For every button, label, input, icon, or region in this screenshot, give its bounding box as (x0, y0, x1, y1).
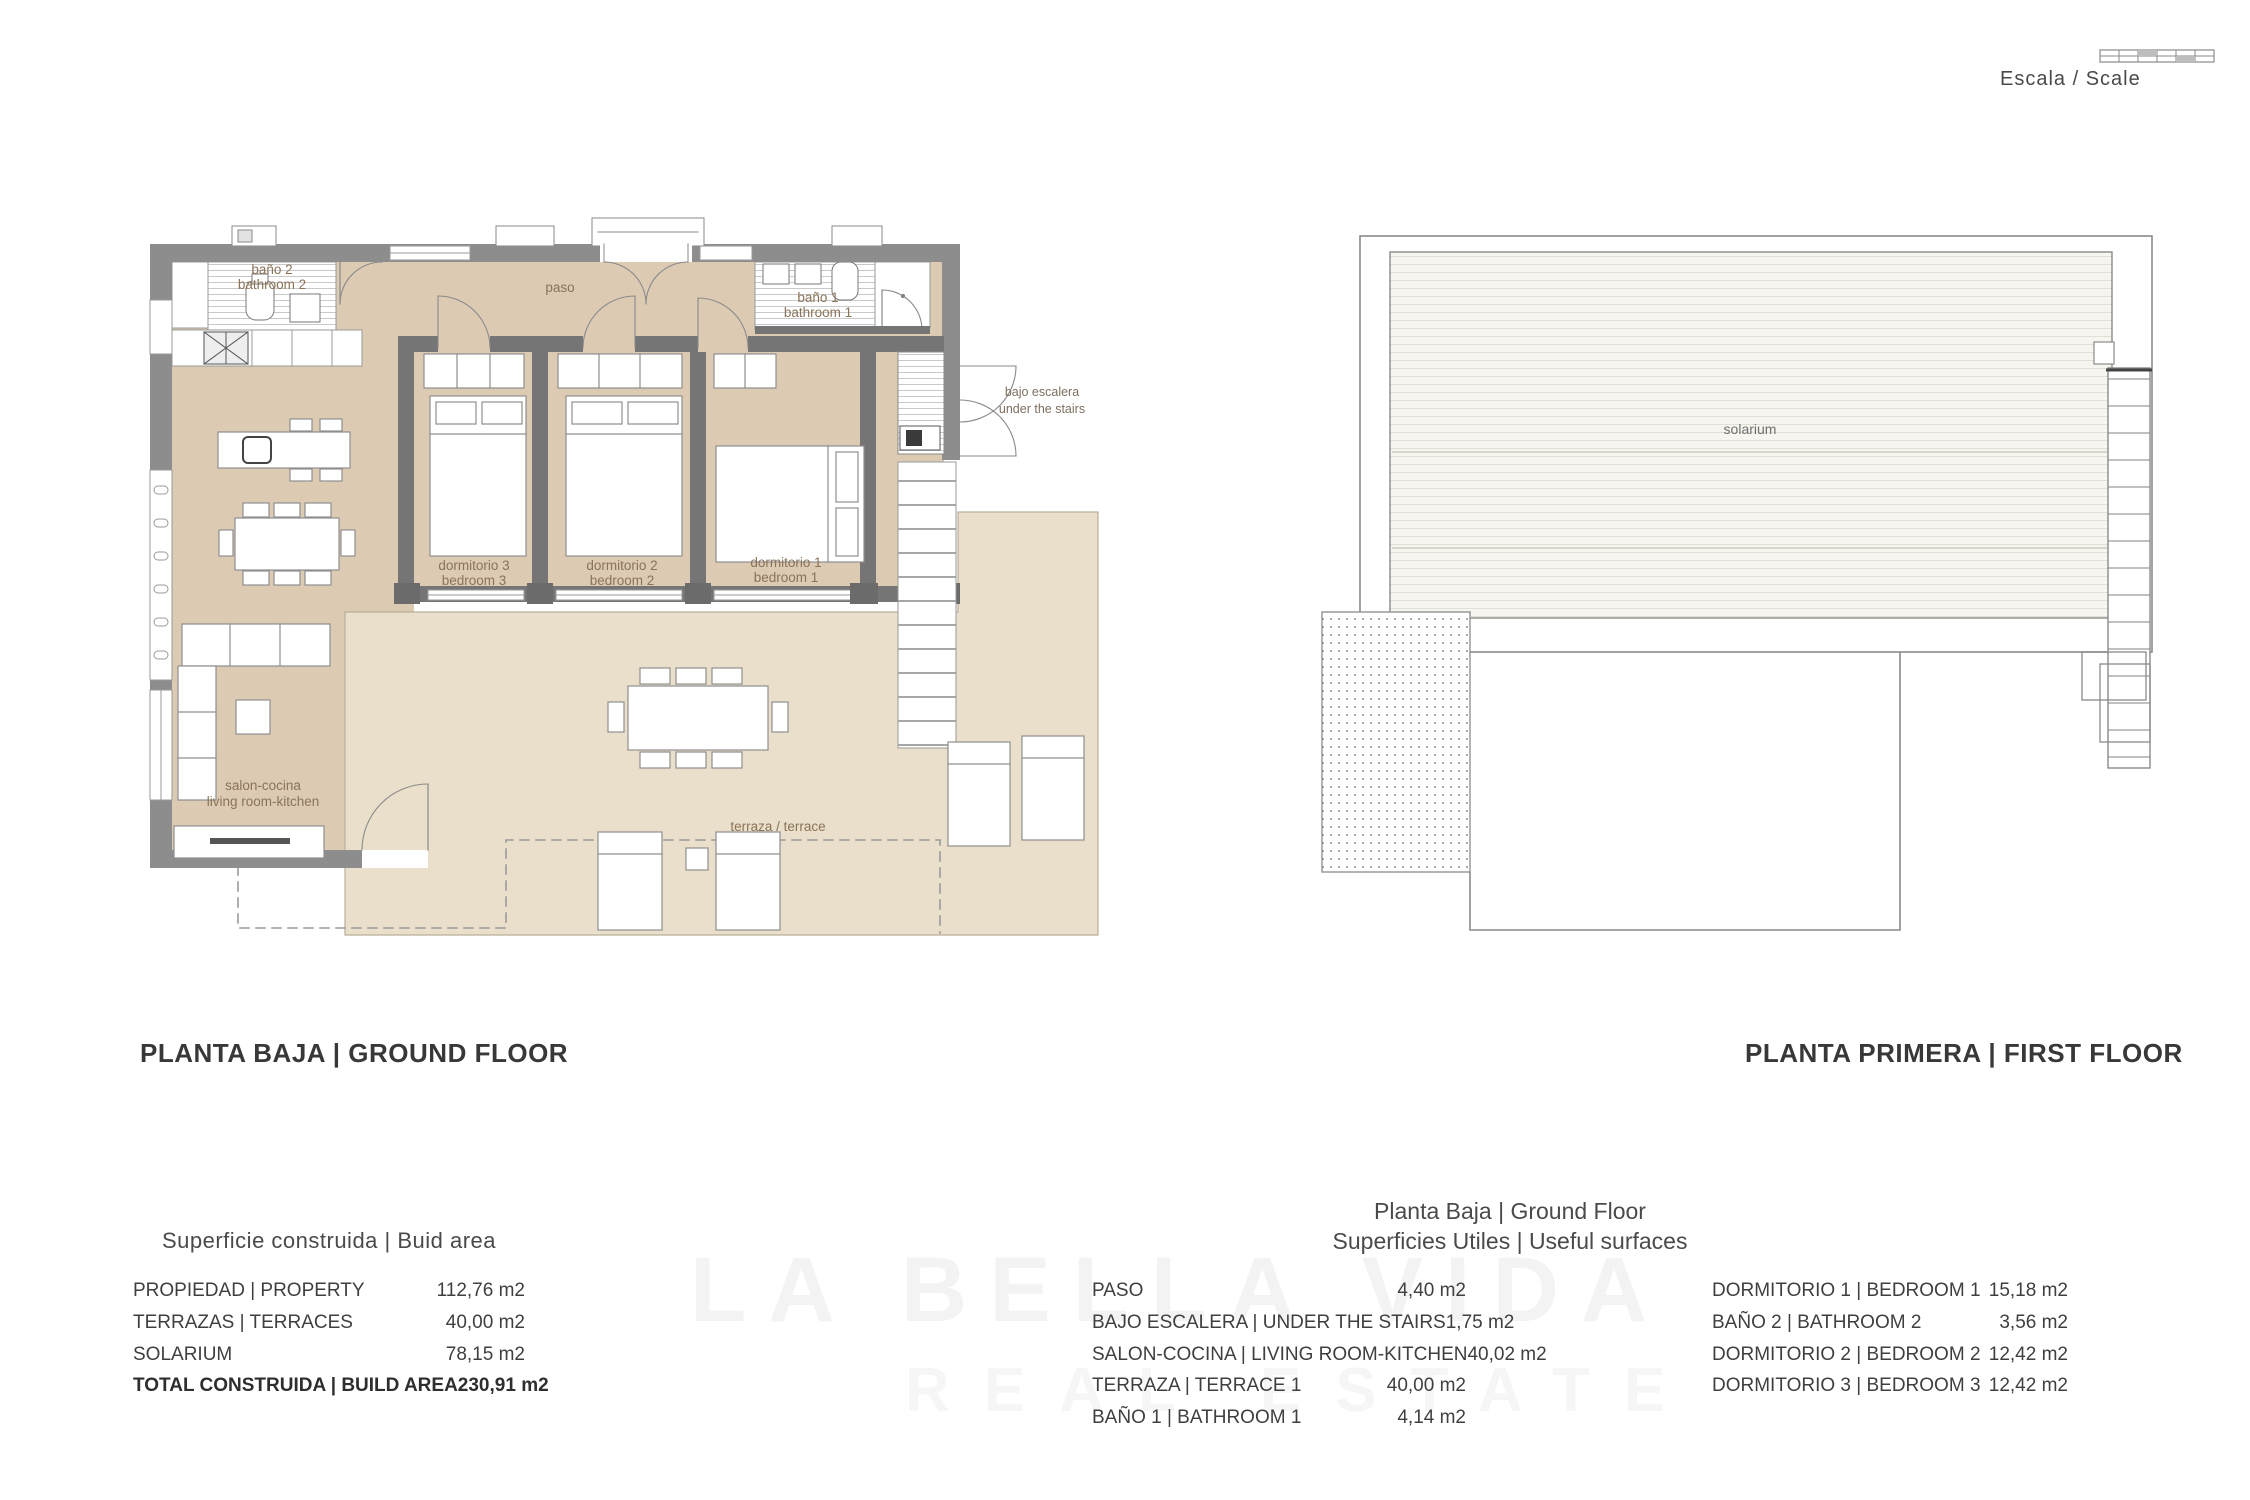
row-label: TERRAZAS | TERRACES (133, 1312, 353, 1334)
row-value: 78,15 m2 (446, 1344, 525, 1366)
row-value: 12,42 m2 (1989, 1375, 2068, 1397)
sink-icon (290, 294, 320, 322)
room-label-dormitorio3: dormitorio 3 (438, 558, 509, 573)
table-row: TERRAZA | TERRACE 1 40,00 m2 (1092, 1375, 1466, 1407)
useful-table-left-column: PASO 4,40 m2 BAJO ESCALERA | UNDER THE S… (1092, 1280, 1466, 1439)
row-label: TERRAZA | TERRACE 1 (1092, 1375, 1301, 1397)
coffee-table (236, 700, 270, 734)
table-row: PROPIEDAD | PROPERTY 112,76 m2 (133, 1280, 525, 1312)
room-label-bano2-en: bathroom 2 (238, 277, 306, 292)
sun-lounger (598, 832, 662, 930)
lower-terrace-outline (1470, 652, 1900, 930)
table-row: BAÑO 1 | BATHROOM 1 4,14 m2 (1092, 1407, 1466, 1439)
first-floor-plan: solarium (1322, 236, 2152, 930)
room-label-under-stairs: under the stairs (999, 402, 1085, 416)
pergola-dotted-area (1322, 612, 1470, 872)
tv-icon (210, 838, 290, 844)
sink-icon (795, 264, 821, 284)
kitchen-counter (172, 330, 362, 366)
row-label: BAJO ESCALERA | UNDER THE STAIRS (1092, 1312, 1446, 1334)
kitchen-island (218, 432, 350, 468)
table-row: BAJO ESCALERA | UNDER THE STAIRS 1,75 m2 (1092, 1312, 1466, 1344)
room-label-dormitorio2: dormitorio 2 (586, 558, 657, 573)
room-label-bajo-escalera: bajo escalera (1005, 385, 1079, 399)
row-value: 40,00 m2 (1387, 1375, 1466, 1397)
row-value: 4,40 m2 (1397, 1280, 1466, 1302)
room-label-bedroom1: bedroom 1 (754, 570, 819, 585)
table-row: PASO 4,40 m2 (1092, 1280, 1466, 1312)
row-value: 15,18 m2 (1989, 1280, 2068, 1302)
table-row: DORMITORIO 3 | BEDROOM 3 12,42 m2 (1712, 1375, 2068, 1407)
table-row: SOLARIUM 78,15 m2 (133, 1344, 525, 1376)
solarium-notch (2094, 342, 2114, 364)
useful-table-heading1: Planta Baja | Ground Floor (1090, 1196, 1930, 1226)
table-row: DORMITORIO 1 | BEDROOM 1 15,18 m2 (1712, 1280, 2068, 1312)
useful-table-heading2: Superficies Utiles | Useful surfaces (1090, 1226, 1930, 1256)
row-value: 4,14 m2 (1397, 1407, 1466, 1429)
table-row: BAÑO 2 | BATHROOM 2 3,56 m2 (1712, 1312, 2068, 1344)
row-label: DORMITORIO 1 | BEDROOM 1 (1712, 1280, 1981, 1302)
sink-icon (243, 437, 271, 463)
room-label-bano1: baño 1 (797, 290, 838, 305)
row-value: 40,00 m2 (446, 1312, 525, 1334)
floorplan-sheet: LA BELLA VIDA REAL ESTATE (0, 0, 2250, 1500)
sofa (182, 624, 330, 666)
table-row: TERRAZAS | TERRACES 40,00 m2 (133, 1312, 525, 1344)
side-staircase (898, 462, 956, 748)
row-label: SOLARIUM (133, 1344, 232, 1366)
room-label-terraza: terraza / terrace (730, 819, 825, 834)
side-table (686, 848, 708, 870)
first-floor-staircase (2108, 368, 2150, 768)
room-label-paso: paso (545, 280, 574, 295)
build-area-table: Superficie construida | Buid area PROPIE… (133, 1228, 525, 1407)
row-label: BAÑO 1 | BATHROOM 1 (1092, 1407, 1301, 1429)
scale-label: Escala / Scale (2000, 68, 2220, 91)
useful-table-right-column: DORMITORIO 1 | BEDROOM 1 15,18 m2 BAÑO 2… (1712, 1280, 2068, 1407)
row-value: 12,42 m2 (1989, 1344, 2068, 1366)
room-label-bano2: baño 2 (251, 262, 292, 277)
row-label: SALON-COCINA | LIVING ROOM-KITCHEN (1092, 1344, 1467, 1366)
sofa (178, 666, 216, 800)
row-value: 3,56 m2 (1999, 1312, 2068, 1334)
room-label-salon-en: living room-kitchen (207, 794, 320, 809)
roof-vents (232, 226, 882, 246)
room-label-salon: salon-cocina (225, 778, 301, 793)
room-label-bano1-en: bathroom 1 (784, 305, 852, 320)
row-label: DORMITORIO 2 | BEDROOM 2 (1712, 1344, 1981, 1366)
row-label: PROPIEDAD | PROPERTY (133, 1280, 365, 1302)
table-row: SALON-COCINA | LIVING ROOM-KITCHEN 40,02… (1092, 1344, 1466, 1376)
sun-lounger (716, 832, 780, 930)
scale-bar (2100, 50, 2214, 62)
row-value: 112,76 m2 (437, 1280, 525, 1302)
row-label: BAÑO 2 | BATHROOM 2 (1712, 1312, 1921, 1334)
build-area-table-title: Superficie construida | Buid area (133, 1228, 525, 1254)
row-value: 40,02 m2 (1467, 1344, 1546, 1366)
ground-floor-plan: baño 2 bathroom 2 paso baño 1 bathroom 1… (150, 218, 1098, 935)
sun-lounger (1022, 736, 1084, 840)
dining-table (235, 518, 339, 570)
table-row-total: TOTAL CONSTRUIDA | BUILD AREA 230,91 m2 (133, 1375, 525, 1407)
bedroom-windows (428, 590, 852, 600)
first-floor-title: PLANTA PRIMERA | FIRST FLOOR (1745, 1038, 2183, 1069)
room-label-solarium: solarium (1724, 421, 1777, 437)
row-value: 230,91 m2 (458, 1375, 549, 1397)
useful-surfaces-table: Planta Baja | Ground Floor Superficies U… (1090, 1196, 2090, 1256)
row-label: TOTAL CONSTRUIDA | BUILD AREA (133, 1375, 458, 1397)
room-label-bedroom2: bedroom 2 (590, 573, 655, 588)
row-value: 1,75 m2 (1446, 1312, 1515, 1334)
sink-icon (763, 264, 789, 284)
room-label-bedroom3: bedroom 3 (442, 573, 507, 588)
sun-lounger (948, 742, 1010, 846)
table-row: DORMITORIO 2 | BEDROOM 2 12,42 m2 (1712, 1344, 2068, 1376)
ground-floor-title: PLANTA BAJA | GROUND FLOOR (140, 1038, 568, 1069)
room-label-dormitorio1: dormitorio 1 (750, 555, 821, 570)
row-label: PASO (1092, 1280, 1143, 1302)
terrace-table (628, 686, 768, 750)
row-label: DORMITORIO 3 | BEDROOM 3 (1712, 1375, 1981, 1397)
